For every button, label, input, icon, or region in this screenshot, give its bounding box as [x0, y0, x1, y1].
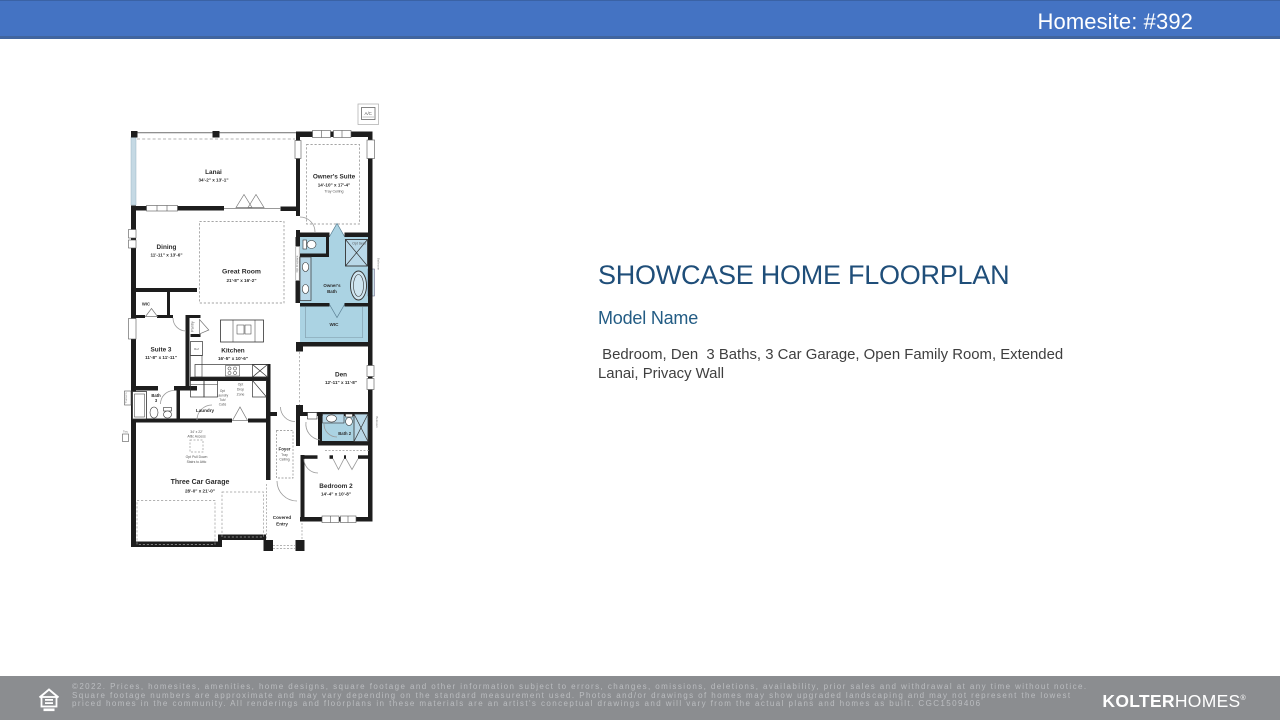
svg-text:Bedroom: Bedroom: [375, 416, 379, 428]
svg-text:Owner's: Owner's: [323, 283, 341, 288]
svg-text:Opt: Opt: [220, 389, 225, 393]
svg-text:Den: Den: [335, 372, 347, 379]
svg-text:Dining: Dining: [157, 244, 177, 251]
svg-text:Lanai: Lanai: [205, 169, 222, 176]
svg-text:Tub/: Tub/: [219, 398, 225, 402]
svg-text:Owner's Suite: Owner's Suite: [313, 174, 356, 181]
svg-text:Tray Ceiling: Tray Ceiling: [324, 190, 343, 194]
svg-text:Suite 3: Suite 3: [151, 347, 172, 354]
svg-text:11'-11" x 13'-6": 11'-11" x 13'-6": [150, 253, 182, 258]
svg-text:Laundry: Laundry: [217, 394, 229, 398]
svg-text:Bathroom: Bathroom: [377, 258, 381, 271]
svg-text:Opt Seat: Opt Seat: [352, 242, 365, 246]
svg-text:11'-8" x 11'-11": 11'-8" x 11'-11": [145, 355, 177, 360]
svg-text:Ceiling: Ceiling: [279, 458, 289, 462]
svg-text:Zone: Zone: [237, 393, 245, 397]
svg-text:Opt Fireplace: Opt Fireplace: [295, 255, 299, 272]
svg-text:Drop: Drop: [237, 388, 244, 392]
svg-text:34'-2" x 13'-1": 34'-2" x 13'-1": [198, 178, 228, 183]
svg-text:Covered: Covered: [273, 515, 292, 520]
svg-text:16'-5" x 10'-6": 16'-5" x 10'-6": [218, 356, 248, 361]
svg-text:34' x 22': 34' x 22': [190, 430, 203, 434]
svg-text:28'-0" x 21'-0": 28'-0" x 21'-0": [185, 489, 215, 494]
svg-text:21'-8" x 16'-2": 21'-8" x 16'-2": [226, 278, 256, 283]
svg-text:Attic Access: Attic Access: [187, 435, 206, 439]
svg-text:Entry: Entry: [276, 522, 288, 527]
svg-text:A/C: A/C: [365, 111, 372, 116]
svg-text:Bedroom 2: Bedroom 2: [319, 483, 353, 490]
svg-text:Opt Pull Down: Opt Pull Down: [186, 455, 208, 459]
svg-text:14'-4" x 10'-8": 14'-4" x 10'-8": [321, 492, 351, 497]
svg-text:Transom: Transom: [124, 392, 128, 404]
svg-text:Bath 2: Bath 2: [338, 431, 351, 436]
svg-text:Great Room: Great Room: [222, 269, 261, 276]
svg-text:3: 3: [155, 398, 158, 403]
svg-text:WIC: WIC: [142, 302, 150, 307]
svg-text:Kitchen: Kitchen: [221, 348, 245, 355]
svg-text:Twc: Twc: [123, 430, 129, 434]
svg-text:Laundry: Laundry: [196, 408, 215, 413]
svg-text:Stairs to Attic: Stairs to Attic: [187, 460, 207, 464]
svg-text:Bath: Bath: [327, 289, 337, 294]
svg-text:Ref: Ref: [194, 347, 199, 351]
svg-text:Three Car Garage: Three Car Garage: [171, 479, 230, 486]
svg-text:12'-11" x 11'-8": 12'-11" x 11'-8": [325, 380, 357, 385]
svg-text:WIC: WIC: [330, 322, 340, 327]
svg-text:14'-10" x 17'-4": 14'-10" x 17'-4": [318, 183, 351, 188]
svg-text:Foyer: Foyer: [279, 447, 291, 452]
svg-text:Tray: Tray: [281, 453, 288, 457]
svg-text:Cabs: Cabs: [219, 403, 227, 407]
svg-text:Opt: Opt: [238, 383, 244, 387]
svg-text:Pantry: Pantry: [191, 321, 195, 332]
